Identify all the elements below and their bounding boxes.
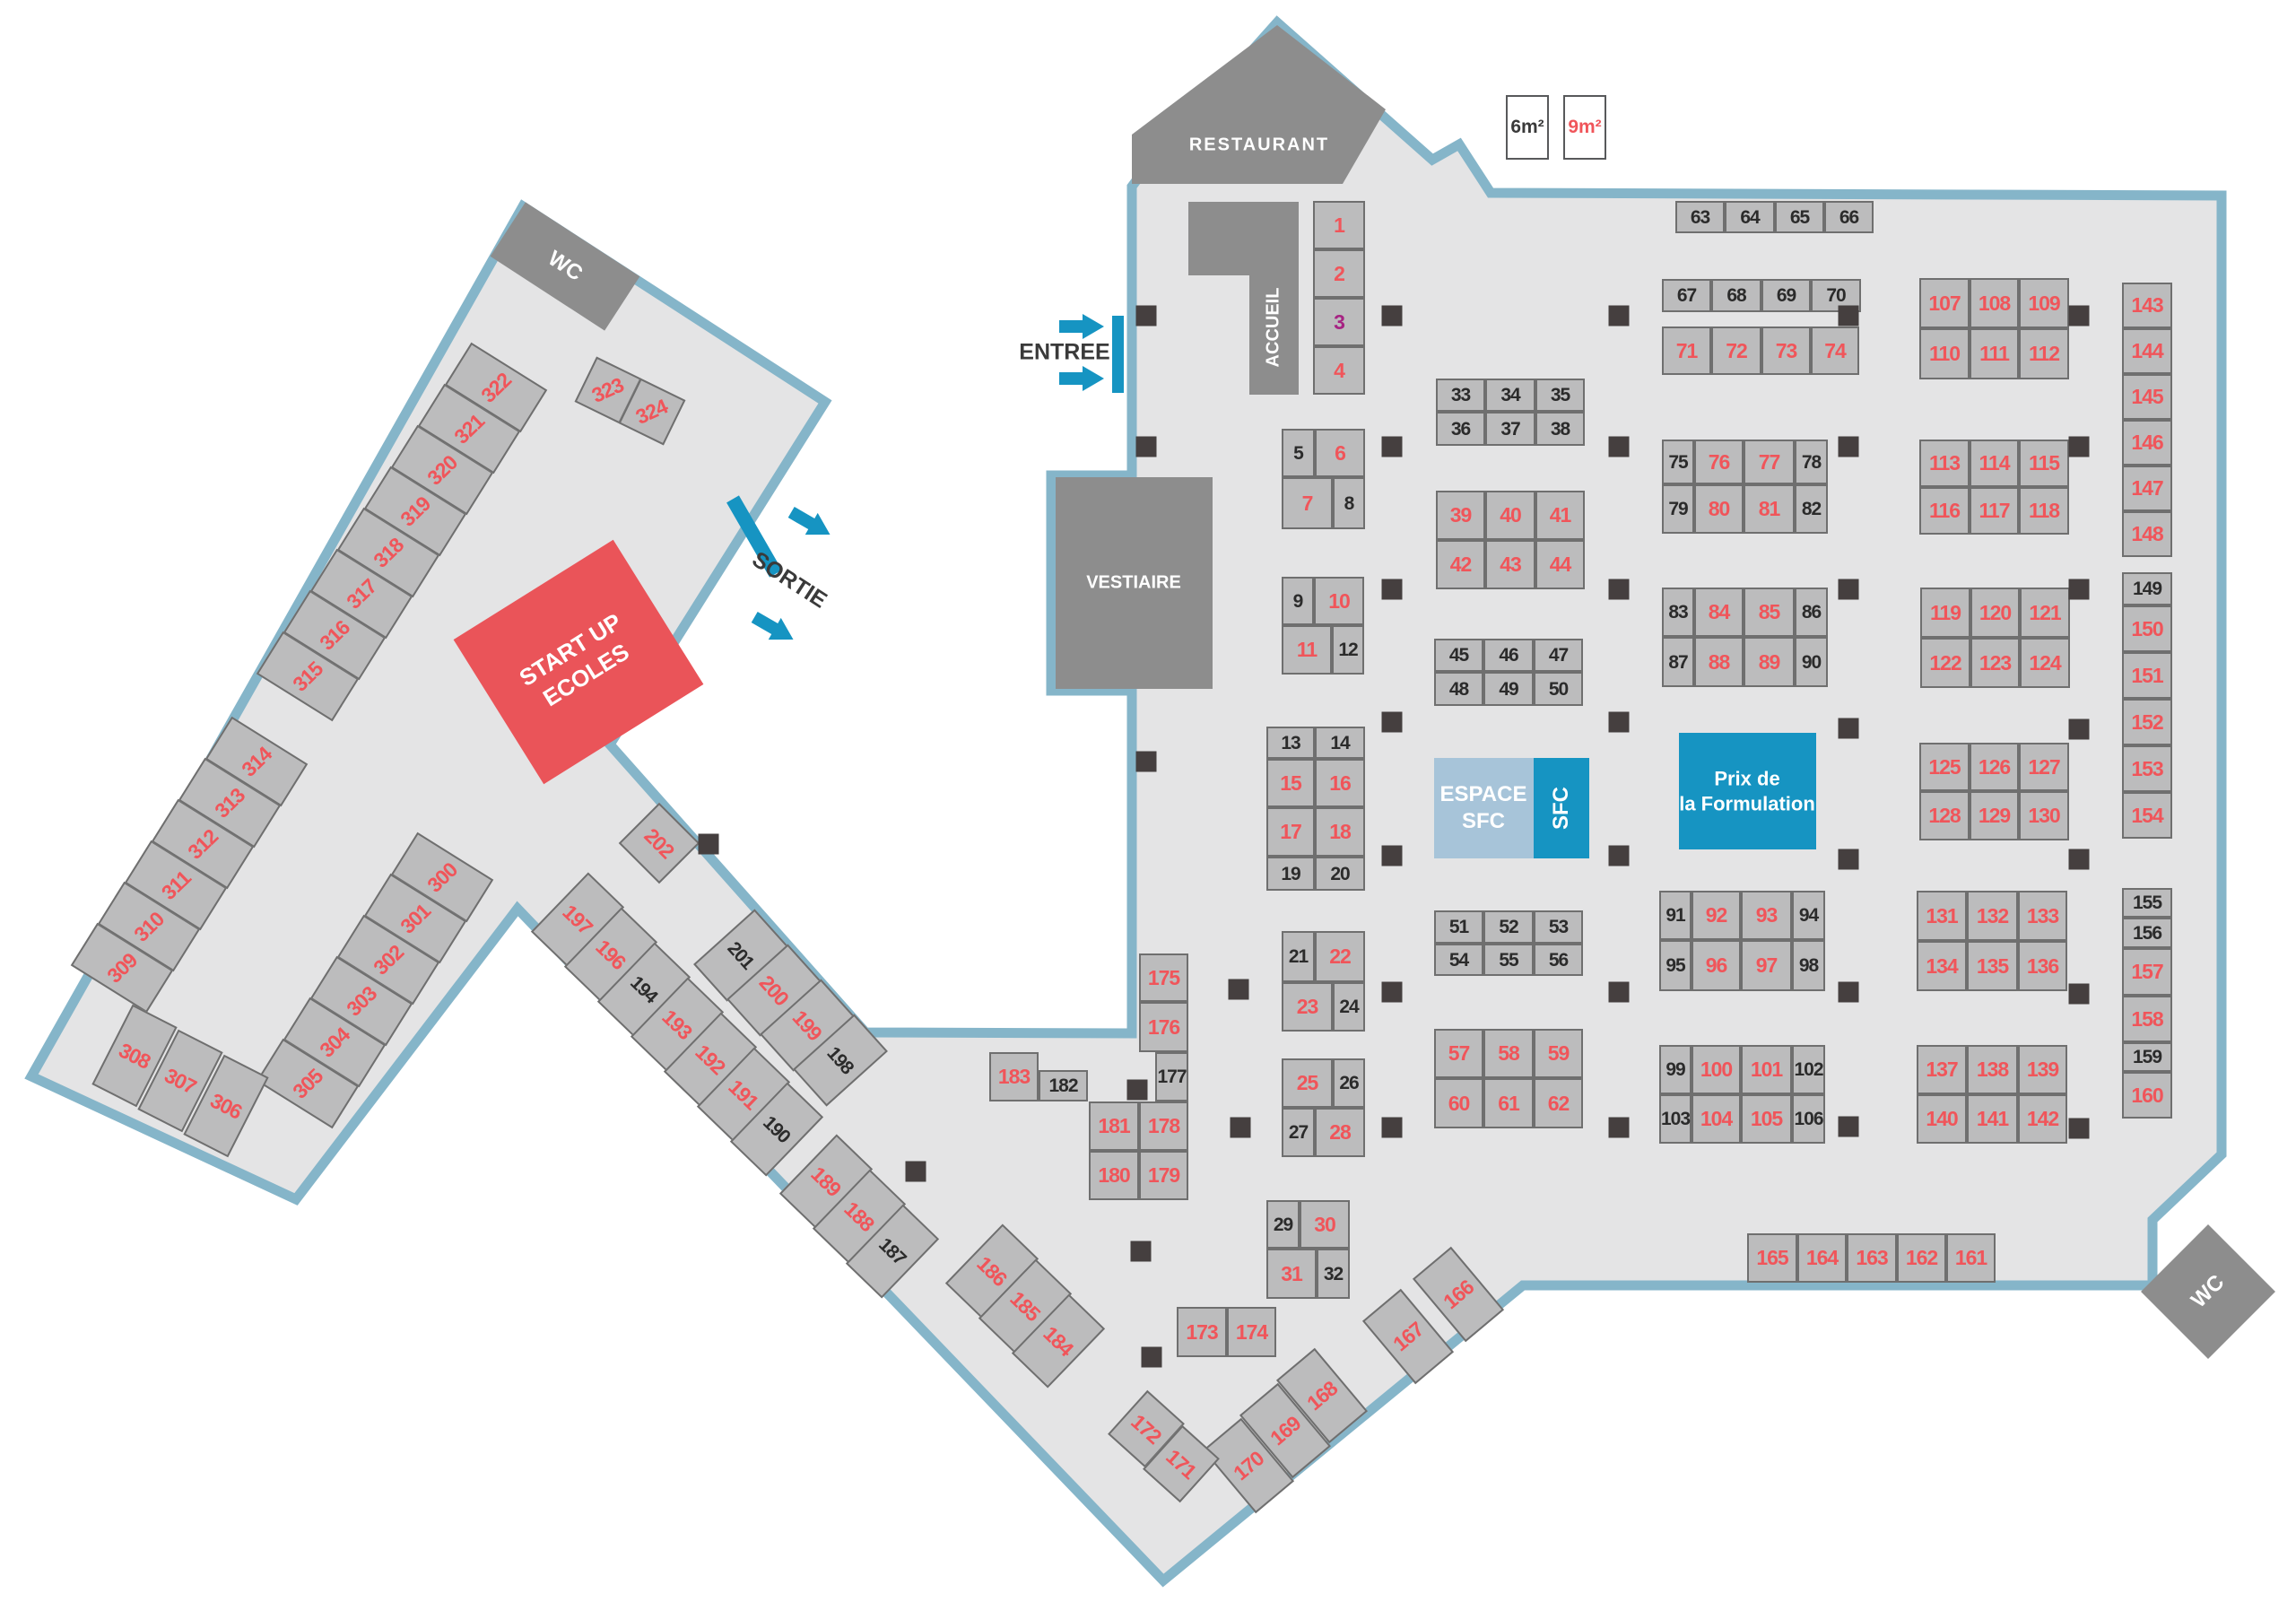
booth-12-number: 12 — [1338, 640, 1357, 659]
booth-37-number: 37 — [1500, 420, 1519, 439]
booth-7[interactable]: 7 — [1282, 477, 1333, 529]
booth-134[interactable]: 134 — [1917, 941, 1967, 991]
booth-91[interactable]: 91 — [1659, 891, 1692, 940]
booth-140[interactable]: 140 — [1917, 1094, 1967, 1144]
booth-144[interactable]: 144 — [2122, 328, 2172, 374]
booth-15-number: 15 — [1280, 773, 1301, 794]
booth-75-number: 75 — [1668, 453, 1687, 472]
booth-185-number: 185 — [1006, 1287, 1043, 1324]
pillar — [2069, 719, 2090, 740]
booth-155-number: 155 — [2133, 893, 2161, 912]
booth-79[interactable]: 79 — [1662, 484, 1694, 534]
startup-ecoles-label: START UP ECOLES — [514, 606, 642, 717]
booth-38[interactable]: 38 — [1535, 412, 1585, 446]
booth-5[interactable]: 5 — [1282, 429, 1315, 477]
booth-173[interactable]: 173 — [1177, 1307, 1227, 1357]
booth-143[interactable]: 143 — [2122, 283, 2172, 328]
booth-44-number: 44 — [1550, 554, 1571, 575]
booth-115[interactable]: 115 — [2019, 440, 2069, 487]
booth-73[interactable]: 73 — [1761, 326, 1811, 375]
pillar — [1609, 306, 1630, 326]
booth-23-number: 23 — [1297, 997, 1318, 1017]
pillar — [1136, 752, 1157, 772]
booth-47[interactable]: 47 — [1534, 639, 1583, 672]
pillar — [1839, 849, 1859, 870]
booth-164[interactable]: 164 — [1797, 1233, 1847, 1283]
booth-145[interactable]: 145 — [2122, 374, 2172, 420]
booth-126[interactable]: 126 — [1970, 743, 2019, 791]
booth-25[interactable]: 25 — [1282, 1058, 1333, 1108]
booth-120[interactable]: 120 — [1970, 588, 2020, 638]
booth-163[interactable]: 163 — [1847, 1233, 1897, 1283]
booth-31[interactable]: 31 — [1266, 1249, 1317, 1299]
booth-30[interactable]: 30 — [1300, 1200, 1350, 1249]
booth-163-number: 163 — [1856, 1248, 1887, 1268]
booth-181[interactable]: 181 — [1089, 1101, 1139, 1151]
booth-175[interactable]: 175 — [1139, 953, 1188, 1002]
booth-55[interactable]: 55 — [1483, 944, 1534, 976]
booth-318-number: 318 — [370, 534, 406, 570]
booth-83[interactable]: 83 — [1662, 588, 1694, 637]
booth-112[interactable]: 112 — [2019, 328, 2069, 379]
booth-128-number: 128 — [1928, 805, 1960, 826]
booth-189-number: 189 — [807, 1162, 844, 1199]
booth-72[interactable]: 72 — [1711, 326, 1761, 375]
booth-129[interactable]: 129 — [1970, 791, 2019, 840]
booth-24[interactable]: 24 — [1333, 982, 1365, 1032]
pillar — [1839, 437, 1859, 457]
booth-5-number: 5 — [1293, 444, 1303, 463]
booth-71[interactable]: 71 — [1662, 326, 1711, 375]
booth-151[interactable]: 151 — [2122, 652, 2172, 699]
booth-35[interactable]: 35 — [1535, 379, 1585, 412]
booth-142-number: 142 — [2027, 1109, 2058, 1129]
booth-152[interactable]: 152 — [2122, 699, 2172, 745]
booth-42[interactable]: 42 — [1436, 540, 1485, 589]
booth-26[interactable]: 26 — [1333, 1058, 1365, 1108]
pillar — [1142, 1347, 1162, 1368]
booth-105[interactable]: 105 — [1741, 1094, 1792, 1144]
booth-139[interactable]: 139 — [2018, 1045, 2067, 1094]
booth-141[interactable]: 141 — [1967, 1094, 2018, 1144]
booth-87[interactable]: 87 — [1662, 637, 1694, 687]
booth-135-number: 135 — [1977, 956, 2008, 977]
booth-111-number: 111 — [1979, 344, 2009, 364]
booth-69[interactable]: 69 — [1761, 279, 1811, 312]
booth-131[interactable]: 131 — [1917, 891, 1967, 941]
booth-54[interactable]: 54 — [1434, 944, 1483, 976]
booth-107-number: 107 — [1928, 293, 1960, 314]
booth-173-number: 173 — [1186, 1322, 1217, 1343]
pillar — [1229, 979, 1249, 1000]
booth-41[interactable]: 41 — [1535, 491, 1585, 540]
booth-109[interactable]: 109 — [2019, 278, 2069, 328]
booth-127-number: 127 — [2028, 757, 2059, 778]
booth-122[interactable]: 122 — [1920, 638, 1970, 688]
booth-133[interactable]: 133 — [2018, 891, 2067, 941]
booth-17[interactable]: 17 — [1266, 807, 1315, 857]
booth-165[interactable]: 165 — [1747, 1233, 1797, 1283]
booth-67[interactable]: 67 — [1662, 279, 1711, 312]
booth-64[interactable]: 64 — [1725, 201, 1775, 233]
booth-101[interactable]: 101 — [1741, 1045, 1792, 1094]
booth-121-number: 121 — [2029, 603, 2060, 623]
legend-9m-label: 9m² — [1568, 117, 1601, 138]
booth-46-number: 46 — [1499, 646, 1518, 665]
booth-20[interactable]: 20 — [1315, 857, 1365, 891]
legend-6m-label: 6m² — [1510, 117, 1544, 138]
pillar — [1609, 712, 1630, 733]
booth-100-number: 100 — [1700, 1059, 1732, 1080]
booth-36[interactable]: 36 — [1436, 412, 1485, 446]
booth-31-number: 31 — [1281, 1264, 1302, 1284]
accueil — [1188, 202, 1299, 275]
booth-147-number: 147 — [2131, 478, 2162, 499]
entree-door[interactable] — [1112, 316, 1124, 393]
booth-111[interactable]: 111 — [1970, 328, 2019, 379]
booth-78-number: 78 — [1802, 453, 1821, 472]
booth-27-number: 27 — [1289, 1123, 1308, 1142]
booth-149[interactable]: 149 — [2122, 572, 2172, 605]
pillar — [1136, 306, 1157, 326]
booth-27[interactable]: 27 — [1282, 1108, 1315, 1157]
booth-43[interactable]: 43 — [1485, 540, 1535, 589]
booth-91-number: 91 — [1665, 906, 1684, 925]
booth-121[interactable]: 121 — [2020, 588, 2070, 638]
booth-146[interactable]: 146 — [2122, 420, 2172, 466]
booth-137[interactable]: 137 — [1917, 1045, 1967, 1094]
booth-16[interactable]: 16 — [1315, 759, 1365, 807]
booth-99[interactable]: 99 — [1659, 1045, 1692, 1094]
booth-46[interactable]: 46 — [1483, 639, 1534, 672]
booth-14[interactable]: 14 — [1315, 727, 1365, 759]
prix-formulation-label: Prix de la Formulation — [1679, 767, 1815, 816]
booth-59-number: 59 — [1548, 1043, 1570, 1064]
booth-127[interactable]: 127 — [2019, 743, 2069, 791]
booth-67-number: 67 — [1677, 286, 1696, 305]
booth-56-number: 56 — [1549, 951, 1568, 970]
booth-90[interactable]: 90 — [1795, 637, 1828, 687]
booth-93[interactable]: 93 — [1741, 891, 1792, 940]
booth-89[interactable]: 89 — [1744, 637, 1795, 687]
booth-148[interactable]: 148 — [2122, 511, 2172, 557]
booth-155[interactable]: 155 — [2122, 888, 2172, 918]
booth-161[interactable]: 161 — [1946, 1233, 1996, 1283]
pillar — [1382, 846, 1403, 866]
booth-113-number: 113 — [1929, 453, 1960, 474]
pillar — [1839, 718, 1859, 739]
entree-arrow-top — [1059, 314, 1104, 339]
booth-123[interactable]: 123 — [1970, 638, 2020, 688]
booth-107[interactable]: 107 — [1919, 278, 1970, 328]
booth-48[interactable]: 48 — [1434, 672, 1483, 706]
espace-sfc-label: ESPACE SFC — [1440, 781, 1527, 835]
booth-135[interactable]: 135 — [1967, 941, 2018, 991]
booth-3-number: 3 — [1334, 312, 1344, 333]
booth-65[interactable]: 65 — [1775, 201, 1824, 233]
booth-157[interactable]: 157 — [2122, 948, 2172, 996]
booth-29-number: 29 — [1274, 1215, 1292, 1234]
booth-76[interactable]: 76 — [1694, 440, 1744, 484]
booth-59[interactable]: 59 — [1534, 1029, 1583, 1078]
booth-96[interactable]: 96 — [1692, 940, 1741, 991]
booth-66[interactable]: 66 — [1824, 201, 1874, 233]
booth-153[interactable]: 153 — [2122, 745, 2172, 792]
booth-39[interactable]: 39 — [1436, 491, 1485, 540]
booth-15[interactable]: 15 — [1266, 759, 1315, 807]
entree-label: ENTREE — [1019, 340, 1109, 366]
booth-320-number: 320 — [423, 451, 460, 488]
booth-97[interactable]: 97 — [1741, 940, 1792, 991]
booth-53[interactable]: 53 — [1534, 910, 1583, 944]
booth-103[interactable]: 103 — [1659, 1094, 1692, 1144]
booth-96-number: 96 — [1706, 955, 1727, 976]
booth-179-number: 179 — [1148, 1165, 1179, 1186]
booth-52-number: 52 — [1499, 918, 1518, 936]
booth-97-number: 97 — [1756, 955, 1778, 976]
booth-45-number: 45 — [1449, 646, 1468, 665]
booth-179[interactable]: 179 — [1139, 1151, 1188, 1200]
booth-55-number: 55 — [1499, 951, 1518, 970]
booth-37[interactable]: 37 — [1485, 412, 1535, 446]
booth-13[interactable]: 13 — [1266, 727, 1315, 759]
booth-117-number: 117 — [1979, 501, 2009, 521]
booth-22-number: 22 — [1329, 946, 1351, 967]
booth-6[interactable]: 6 — [1315, 429, 1365, 477]
booth-191-number: 191 — [725, 1075, 761, 1112]
booth-159[interactable]: 159 — [2122, 1042, 2172, 1072]
booth-139-number: 139 — [2027, 1059, 2058, 1080]
booth-112-number: 112 — [2029, 344, 2059, 364]
booth-88[interactable]: 88 — [1694, 637, 1744, 687]
booth-1[interactable]: 1 — [1313, 201, 1365, 249]
booth-2[interactable]: 2 — [1313, 249, 1365, 298]
booth-150[interactable]: 150 — [2122, 605, 2172, 652]
booth-162-number: 162 — [1906, 1248, 1937, 1268]
booth-108[interactable]: 108 — [1970, 278, 2019, 328]
restaurant-shape — [1132, 25, 1386, 184]
booth-78[interactable]: 78 — [1795, 440, 1828, 484]
booth-142[interactable]: 142 — [2018, 1094, 2067, 1144]
booth-104[interactable]: 104 — [1692, 1094, 1741, 1144]
booth-100[interactable]: 100 — [1692, 1045, 1741, 1094]
booth-147[interactable]: 147 — [2122, 466, 2172, 511]
booth-117[interactable]: 117 — [1970, 487, 2019, 535]
booth-119[interactable]: 119 — [1920, 588, 1970, 638]
booth-182-number: 182 — [1048, 1076, 1077, 1095]
booth-28[interactable]: 28 — [1315, 1108, 1365, 1157]
booth-38-number: 38 — [1551, 420, 1570, 439]
booth-77[interactable]: 77 — [1744, 440, 1795, 484]
booth-104-number: 104 — [1700, 1109, 1732, 1129]
booth-22[interactable]: 22 — [1315, 931, 1365, 982]
booth-10[interactable]: 10 — [1314, 577, 1364, 625]
booth-80-number: 80 — [1709, 499, 1730, 519]
pillar — [906, 1162, 926, 1182]
booth-98[interactable]: 98 — [1792, 940, 1825, 991]
booth-51[interactable]: 51 — [1434, 910, 1483, 944]
booth-18-number: 18 — [1329, 822, 1351, 842]
booth-87-number: 87 — [1668, 653, 1687, 672]
floor-plan: RESTAURANT ENTREE SORTIE 6m² 9m² ACCUEIL… — [0, 0, 2296, 1602]
accueil-label: ACCUEIL — [1263, 288, 1285, 368]
booth-176-number: 176 — [1148, 1017, 1179, 1038]
pillar — [1382, 579, 1403, 600]
booth-68[interactable]: 68 — [1711, 279, 1761, 312]
booth-52[interactable]: 52 — [1483, 910, 1534, 944]
booth-95[interactable]: 95 — [1659, 940, 1692, 991]
booth-33[interactable]: 33 — [1436, 379, 1485, 412]
booth-109-number: 109 — [2028, 293, 2059, 314]
legend-9m: 9m² — [1563, 95, 1606, 160]
booth-125[interactable]: 125 — [1919, 743, 1970, 791]
booth-95-number: 95 — [1665, 956, 1684, 975]
booth-137-number: 137 — [1926, 1059, 1957, 1080]
booth-21[interactable]: 21 — [1282, 931, 1315, 982]
booth-156[interactable]: 156 — [2122, 918, 2172, 948]
booth-60[interactable]: 60 — [1434, 1078, 1483, 1128]
booth-34-number: 34 — [1500, 386, 1519, 405]
booth-160[interactable]: 160 — [2122, 1072, 2172, 1119]
booth-132[interactable]: 132 — [1967, 891, 2018, 941]
booth-168-number: 168 — [1303, 1378, 1341, 1414]
booth-180[interactable]: 180 — [1089, 1151, 1139, 1200]
booth-7-number: 7 — [1302, 493, 1313, 514]
booth-44[interactable]: 44 — [1535, 540, 1585, 589]
booth-183-number: 183 — [998, 1067, 1030, 1087]
booth-116[interactable]: 116 — [1919, 487, 1970, 535]
booth-86[interactable]: 86 — [1795, 588, 1828, 637]
booth-102[interactable]: 102 — [1792, 1045, 1825, 1094]
booth-190-number: 190 — [760, 1112, 794, 1145]
booth-32-number: 32 — [1324, 1265, 1343, 1284]
booth-61-number: 61 — [1498, 1093, 1519, 1114]
booth-89-number: 89 — [1759, 652, 1780, 673]
booth-65-number: 65 — [1790, 208, 1809, 227]
booth-36-number: 36 — [1451, 420, 1470, 439]
booth-126-number: 126 — [1979, 757, 2010, 778]
booth-8-number: 8 — [1344, 494, 1354, 513]
booth-18[interactable]: 18 — [1315, 807, 1365, 857]
booth-76-number: 76 — [1709, 452, 1730, 473]
booth-32[interactable]: 32 — [1317, 1249, 1350, 1299]
booth-8[interactable]: 8 — [1333, 477, 1365, 529]
booth-122-number: 122 — [1929, 653, 1961, 674]
booth-88-number: 88 — [1709, 652, 1730, 673]
booth-71-number: 71 — [1676, 341, 1698, 361]
booth-106[interactable]: 106 — [1792, 1094, 1825, 1144]
booth-61[interactable]: 61 — [1483, 1078, 1534, 1128]
booth-56[interactable]: 56 — [1534, 944, 1583, 976]
booth-108-number: 108 — [1979, 293, 2010, 314]
booth-124[interactable]: 124 — [2020, 638, 2070, 688]
booth-68-number: 68 — [1726, 286, 1745, 305]
booth-81[interactable]: 81 — [1744, 484, 1795, 534]
booth-151-number: 151 — [2131, 666, 2162, 686]
booth-58[interactable]: 58 — [1483, 1029, 1534, 1078]
booth-178[interactable]: 178 — [1139, 1101, 1188, 1151]
booth-3[interactable]: 3 — [1313, 298, 1365, 346]
booth-98-number: 98 — [1799, 956, 1818, 975]
booth-162[interactable]: 162 — [1897, 1233, 1946, 1283]
booth-63[interactable]: 63 — [1675, 201, 1725, 233]
booth-39-number: 39 — [1450, 505, 1472, 526]
booth-74[interactable]: 74 — [1811, 326, 1859, 375]
booth-50[interactable]: 50 — [1534, 672, 1583, 706]
booth-154[interactable]: 154 — [2122, 792, 2172, 839]
booth-62[interactable]: 62 — [1534, 1078, 1583, 1128]
booth-158[interactable]: 158 — [2122, 996, 2172, 1042]
booth-174[interactable]: 174 — [1227, 1307, 1276, 1357]
booth-172-number: 172 — [1127, 1411, 1165, 1448]
booth-119-number: 119 — [1930, 603, 1961, 623]
booth-35-number: 35 — [1551, 386, 1570, 405]
booth-176[interactable]: 176 — [1139, 1002, 1188, 1052]
booth-136[interactable]: 136 — [2018, 941, 2067, 991]
booth-182[interactable]: 182 — [1039, 1070, 1088, 1101]
booth-110[interactable]: 110 — [1919, 328, 1970, 379]
booth-306-number: 306 — [207, 1090, 245, 1123]
booth-113[interactable]: 113 — [1919, 440, 1970, 487]
booth-85[interactable]: 85 — [1744, 588, 1795, 637]
booth-183[interactable]: 183 — [989, 1052, 1039, 1101]
restaurant-label: RESTAURANT — [1189, 135, 1329, 156]
booth-321-number: 321 — [450, 410, 487, 447]
booth-80[interactable]: 80 — [1694, 484, 1744, 534]
booth-77-number: 77 — [1759, 452, 1780, 473]
booth-19[interactable]: 19 — [1266, 857, 1315, 891]
booth-11[interactable]: 11 — [1282, 625, 1332, 675]
booth-177[interactable]: 177 — [1155, 1052, 1188, 1101]
booth-319-number: 319 — [396, 492, 433, 529]
booth-40[interactable]: 40 — [1485, 491, 1535, 540]
booth-57[interactable]: 57 — [1434, 1029, 1483, 1078]
booth-145-number: 145 — [2131, 387, 2162, 407]
booth-118-number: 118 — [2029, 501, 2059, 521]
booth-94[interactable]: 94 — [1792, 891, 1825, 940]
booth-92[interactable]: 92 — [1692, 891, 1741, 940]
booth-149-number: 149 — [2133, 579, 2161, 598]
booth-49[interactable]: 49 — [1483, 672, 1534, 706]
booth-93-number: 93 — [1756, 905, 1778, 926]
booth-82[interactable]: 82 — [1795, 484, 1828, 534]
booth-130[interactable]: 130 — [2019, 791, 2069, 840]
booth-138[interactable]: 138 — [1967, 1045, 2018, 1094]
booth-19-number: 19 — [1281, 865, 1300, 884]
booth-92-number: 92 — [1706, 905, 1727, 926]
booth-114[interactable]: 114 — [1970, 440, 2019, 487]
booth-45[interactable]: 45 — [1434, 639, 1483, 672]
booth-128[interactable]: 128 — [1919, 791, 1970, 840]
booth-187-number: 187 — [875, 1234, 909, 1267]
sfc-label: SFC — [1548, 787, 1575, 830]
booth-159-number: 159 — [2133, 1048, 2161, 1067]
pillar — [1382, 1118, 1403, 1138]
booth-10-number: 10 — [1328, 591, 1350, 612]
booth-29[interactable]: 29 — [1266, 1200, 1300, 1249]
booth-84[interactable]: 84 — [1694, 588, 1744, 637]
booth-118[interactable]: 118 — [2019, 487, 2069, 535]
booth-4[interactable]: 4 — [1313, 346, 1365, 395]
booth-85-number: 85 — [1759, 602, 1780, 623]
booth-75[interactable]: 75 — [1662, 440, 1694, 484]
booth-138-number: 138 — [1977, 1059, 2008, 1080]
booth-34[interactable]: 34 — [1485, 379, 1535, 412]
booth-47-number: 47 — [1549, 646, 1568, 665]
booth-23[interactable]: 23 — [1282, 982, 1333, 1032]
booth-12[interactable]: 12 — [1332, 625, 1364, 675]
booth-9[interactable]: 9 — [1282, 577, 1314, 625]
